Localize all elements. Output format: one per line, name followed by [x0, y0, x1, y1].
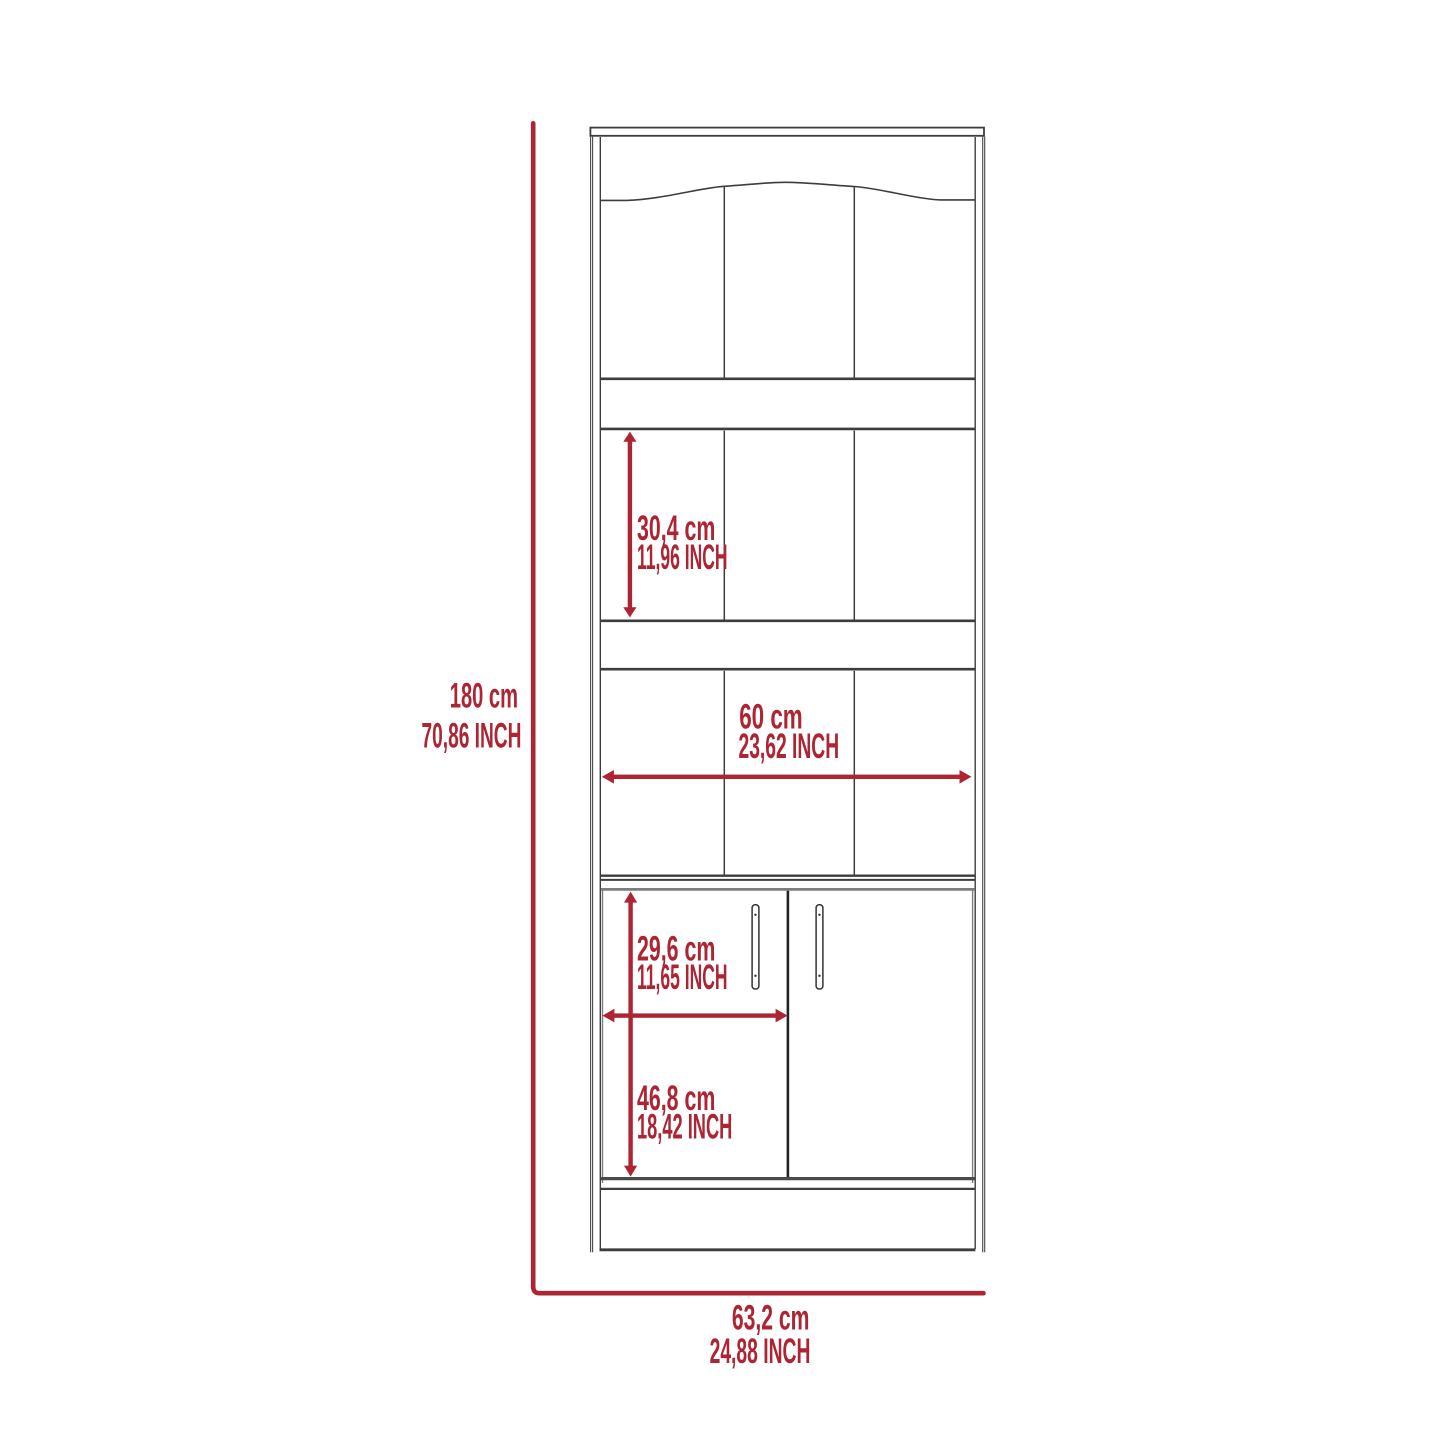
svg-text:11,96 INCH: 11,96 INCH: [637, 538, 728, 577]
svg-text:180 cm: 180 cm: [450, 676, 518, 715]
svg-text:11,65 INCH: 11,65 INCH: [637, 958, 728, 997]
svg-text:70,86 INCH: 70,86 INCH: [422, 716, 522, 755]
svg-text:18,42 INCH: 18,42 INCH: [637, 1108, 732, 1147]
svg-text:23,62 INCH: 23,62 INCH: [739, 727, 840, 766]
svg-text:24,88 INCH: 24,88 INCH: [710, 1332, 811, 1371]
